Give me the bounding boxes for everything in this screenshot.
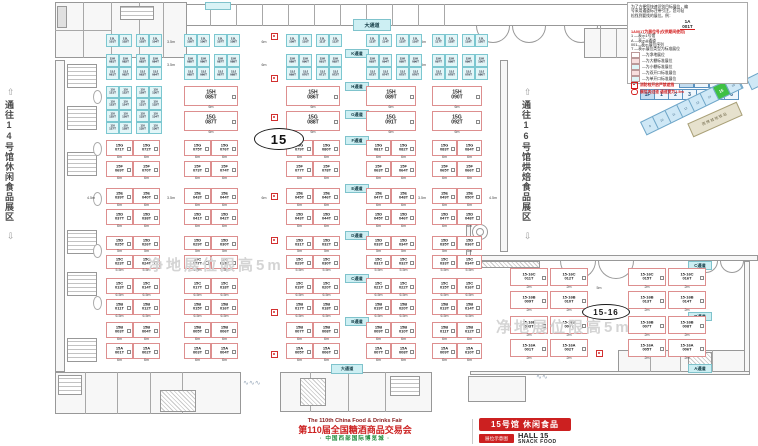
booth-15G-083T[interactable]: 15G 083T xyxy=(432,140,457,156)
booth-15J-065T[interactable]: 15J 065T xyxy=(184,67,197,80)
booth-15K-097T[interactable]: 15K 097T xyxy=(432,54,445,67)
booth-15B-011T[interactable]: 15B 011T xyxy=(106,299,133,315)
booth-15A-003T[interactable]: 15A 003T xyxy=(184,343,211,359)
dimension-label: 3.5m xyxy=(162,197,180,201)
booth-15D-034T[interactable]: 15D 034T xyxy=(391,236,416,250)
booth-15I-134T[interactable]: 15I 134T xyxy=(149,110,162,122)
booth-label: 15-16B 009T xyxy=(511,296,547,304)
booth-15G-084T[interactable]: 15G 084T xyxy=(457,140,482,156)
booth-15G-082T[interactable]: 15G 082T xyxy=(391,140,416,156)
booth-15D-048T[interactable]: 15D 048T xyxy=(457,209,482,225)
booth-15H-089T[interactable]: 15H 089T xyxy=(366,86,416,106)
booth-label: 15D 030T xyxy=(212,239,237,247)
legend-sample-number: 1A001T xyxy=(631,19,744,29)
booth-15-16B-014T[interactable]: 15-16B 014T xyxy=(668,291,706,309)
booth-15H-086T[interactable]: 15H 086T xyxy=(286,86,340,106)
booth-15L-114T[interactable]: 15L 114T xyxy=(379,34,392,47)
booth-label: 15I 132T xyxy=(150,101,161,107)
booth-15K-100T[interactable]: 15K 100T xyxy=(475,54,488,67)
booth-15-16B-013T[interactable]: 15-16B 013T xyxy=(628,291,666,309)
booth-15D-042T[interactable]: 15D 042T xyxy=(211,209,238,225)
booth-label: 15-16B 013T xyxy=(629,296,665,304)
booth-15I-121T[interactable]: 15I 121T xyxy=(106,86,119,98)
booth-15C-030T[interactable]: 15C 030T xyxy=(313,255,340,269)
booth-15L-113T[interactable]: 15L 113T xyxy=(366,34,379,47)
booth-15E-039T[interactable]: 15E 039T xyxy=(106,188,133,204)
booth-label: 15G 072T xyxy=(134,144,159,152)
booth-15C-023T[interactable]: 15C 023T xyxy=(106,255,133,269)
booth-15C-014T[interactable]: 15C 014T xyxy=(133,278,160,294)
booth-15C-018T[interactable]: 15C 018T xyxy=(211,278,238,294)
booth-label: 15K 086T xyxy=(198,57,209,63)
booth-15K-092T[interactable]: 15K 092T xyxy=(329,54,342,67)
booth-label: 15I 135T xyxy=(137,125,148,131)
booth-15L-102T[interactable]: 15L 102T xyxy=(119,34,132,47)
booth-15L-109T[interactable]: 15L 109T xyxy=(286,34,299,47)
booth-15B-019T[interactable]: 15B 019T xyxy=(366,299,391,315)
booth-15C-015T[interactable]: 15C 015T xyxy=(432,278,457,294)
booth-15L-108T[interactable]: 15L 108T xyxy=(227,34,240,47)
booth-15A-006T[interactable]: 15A 006T xyxy=(313,343,340,359)
booth-15J-068T[interactable]: 15J 068T xyxy=(227,67,240,80)
dimension-label: 6m xyxy=(366,156,391,160)
booth-15L-104T[interactable]: 15L 104T xyxy=(149,34,162,47)
booth-15L-116T[interactable]: 15L 116T xyxy=(409,34,422,47)
dimension-label: 6m xyxy=(391,338,416,342)
booth-15-16C-016T[interactable]: 15-16C 016T xyxy=(668,268,706,286)
watermark: 净地展位限高5m xyxy=(148,254,284,275)
booth-label: 15C 030T xyxy=(314,258,339,266)
booth-label: 15G 075T xyxy=(185,144,210,152)
booth-15D-025T[interactable]: 15D 025T xyxy=(106,236,133,250)
staircase xyxy=(390,376,420,396)
booth-label: 15K 084T xyxy=(150,57,161,63)
booth-15J-080T[interactable]: 15J 080T xyxy=(475,67,488,80)
booth-label: 15K 099T xyxy=(463,57,474,63)
booth-15E-050T[interactable]: 15E 050T xyxy=(457,188,482,204)
booth-15L-107T[interactable]: 15L 107T xyxy=(214,34,227,47)
booth-15L-112T[interactable]: 15L 112T xyxy=(329,34,342,47)
booth-15F-074T[interactable]: 15F 074T xyxy=(211,161,238,177)
dimension-label: 6m xyxy=(211,204,238,208)
booth-label: 15K 092T xyxy=(330,57,341,63)
booth-15J-072T[interactable]: 15J 072T xyxy=(329,67,342,80)
booth-15L-106T[interactable]: 15L 106T xyxy=(197,34,210,47)
booth-15A-009T[interactable]: 15A 009T xyxy=(432,343,457,359)
expansion-joint: ∿∿ xyxy=(536,374,548,381)
booth-15G-087T[interactable]: 15G 087T xyxy=(184,111,238,131)
booth-label: 15B 014T xyxy=(458,303,481,311)
wall-hatch xyxy=(300,378,326,406)
booth-15I-130T[interactable]: 15I 130T xyxy=(149,86,162,98)
booth-15J-064T[interactable]: 15J 064T xyxy=(149,67,162,80)
booth-15-16A-002T[interactable]: 15-16A 002T xyxy=(550,339,588,357)
booth-15D-045T[interactable]: 15D 045T xyxy=(366,209,391,225)
booth-label: 15A 001T xyxy=(107,347,132,355)
booth-15A-007T[interactable]: 15A 007T xyxy=(366,343,391,359)
entrance-door-arc xyxy=(512,26,546,43)
booth-15E-045T[interactable]: 15E 045T xyxy=(286,188,313,204)
booth-15I-131T[interactable]: 15I 131T xyxy=(136,98,149,110)
booth-15J-074T[interactable]: 15J 074T xyxy=(379,67,392,80)
booth-label: 15-16A 005T xyxy=(629,344,665,352)
booth-15H-090T[interactable]: 15H 090T xyxy=(432,86,482,106)
booth-15B-009T[interactable]: 15B 009T xyxy=(366,322,391,338)
booth-15E-047T[interactable]: 15E 047T xyxy=(366,188,391,204)
dimension-label: 6m xyxy=(133,156,160,160)
booth-15C-034T[interactable]: 15C 034T xyxy=(457,255,482,269)
booth-15K-082T[interactable]: 15K 082T xyxy=(119,54,132,67)
booth-label: 15A 007T xyxy=(367,347,390,355)
booth-15J-078T[interactable]: 15J 078T xyxy=(445,67,458,80)
booth-label: 15A 004T xyxy=(212,347,237,355)
booth-15A-001T[interactable]: 15A 001T xyxy=(106,343,133,359)
booth-15J-077T[interactable]: 15J 077T xyxy=(432,67,445,80)
booth-15C-033T[interactable]: 15C 033T xyxy=(432,255,457,269)
booth-label: 15C 014T xyxy=(134,282,159,290)
booth-15J-062T[interactable]: 15J 062T xyxy=(119,67,132,80)
booth-15K-083T[interactable]: 15K 083T xyxy=(136,54,149,67)
booth-15D-033T[interactable]: 15D 033T xyxy=(366,236,391,250)
booth-label: 15F 065T xyxy=(433,165,456,173)
dimension-label: 6m xyxy=(457,156,482,160)
dimension-label: 6m xyxy=(133,338,160,342)
booth-15C-016T[interactable]: 15C 016T xyxy=(457,278,482,294)
booth-15B-016T[interactable]: 15B 016T xyxy=(211,299,238,315)
booth-15C-017T[interactable]: 15C 017T xyxy=(184,278,211,294)
booth-15E-046T[interactable]: 15E 046T xyxy=(313,188,340,204)
booth-15-16A-001T[interactable]: 15-16A 001T xyxy=(510,339,548,357)
booth-15C-031T[interactable]: 15C 031T xyxy=(366,255,391,269)
booth-label: 15I 136T xyxy=(150,125,161,131)
booth-15C-032T[interactable]: 15C 032T xyxy=(391,255,416,269)
dimension-label: 3.5m xyxy=(162,41,180,45)
booth-15A-010T[interactable]: 15A 010T xyxy=(457,343,482,359)
booth-15I-135T[interactable]: 15I 135T xyxy=(136,122,149,134)
booth-15B-010T[interactable]: 15B 010T xyxy=(391,322,416,338)
booth-15F-077T[interactable]: 15F 077T xyxy=(286,161,313,177)
booth-15L-118T[interactable]: 15L 118T xyxy=(445,34,458,47)
dimension-label: 5m xyxy=(432,250,457,254)
dimension-label: 6m xyxy=(366,225,391,229)
booth-15L-105T[interactable]: 15L 105T xyxy=(184,34,197,47)
booth-15A-002T[interactable]: 15A 002T xyxy=(133,343,160,359)
staircase xyxy=(67,152,97,176)
booth-15C-021T[interactable]: 15C 021T xyxy=(366,278,391,294)
booth-15D-038T[interactable]: 15D 038T xyxy=(133,209,160,225)
booth-15B-013T[interactable]: 15B 013T xyxy=(432,299,457,315)
dimension-label: 6m xyxy=(313,156,340,160)
booth-15K-089T[interactable]: 15K 089T xyxy=(286,54,299,67)
booth-15B-012T[interactable]: 15B 012T xyxy=(133,299,160,315)
booth-15L-120T[interactable]: 15L 120T xyxy=(475,34,488,47)
booth-label: 15J 066T xyxy=(198,70,209,76)
booth-15I-122T[interactable]: 15I 122T xyxy=(119,86,132,98)
booth-15J-066T[interactable]: 15J 066T xyxy=(197,67,210,80)
booth-15C-019T[interactable]: 15C 019T xyxy=(286,278,313,294)
booth-15D-026T[interactable]: 15D 026T xyxy=(133,236,160,250)
booth-label: 15B 016T xyxy=(212,303,237,311)
booth-label: 15C 013T xyxy=(107,282,132,290)
booth-15F-063T[interactable]: 15F 063T xyxy=(366,161,391,177)
booth-label: 15J 072T xyxy=(330,70,341,76)
booth-15I-132T[interactable]: 15I 132T xyxy=(149,98,162,110)
booth-label: 15K 091T xyxy=(317,57,328,63)
booth-label: 15J 079T xyxy=(463,70,474,76)
booth-15-16A-005T[interactable]: 15-16A 005T xyxy=(628,339,666,357)
booth-15K-081T[interactable]: 15K 081T xyxy=(106,54,119,67)
booth-label: 15A 008T xyxy=(392,347,415,355)
booth-15D-031T[interactable]: 15D 031T xyxy=(286,236,313,250)
booth-15J-070T[interactable]: 15J 070T xyxy=(299,67,312,80)
booth-15C-029T[interactable]: 15C 029T xyxy=(286,255,313,269)
booth-15B-015T[interactable]: 15B 015T xyxy=(184,299,211,315)
booth-15-16B-007T[interactable]: 15-16B 007T xyxy=(628,316,666,334)
booth-15B-008T[interactable]: 15B 008T xyxy=(313,322,340,338)
booth-15-16C-015T[interactable]: 15-16C 015T xyxy=(628,268,666,286)
booth-15I-133T[interactable]: 15I 133T xyxy=(136,110,149,122)
booth-15B-014T[interactable]: 15B 014T xyxy=(457,299,482,315)
dimension-label: 6m xyxy=(106,225,133,229)
booth-15K-085T[interactable]: 15K 085T xyxy=(184,54,197,67)
spiral-stair-inner xyxy=(476,228,484,236)
booth-label: 15L 118T xyxy=(446,37,457,43)
booth-15E-040T[interactable]: 15E 040T xyxy=(133,188,160,204)
booth-15F-064T[interactable]: 15F 064T xyxy=(391,161,416,177)
booth-15D-046T[interactable]: 15D 046T xyxy=(391,209,416,225)
wall-hatch xyxy=(160,390,196,412)
booth-15F-066T[interactable]: 15F 066T xyxy=(457,161,482,177)
booth-15I-128T[interactable]: 15I 128T xyxy=(119,122,132,134)
booth-15F-070T[interactable]: 15F 070T xyxy=(133,161,160,177)
booth-15G-091T[interactable]: 15G 091T xyxy=(366,111,416,131)
booth-15D-032T[interactable]: 15D 032T xyxy=(313,236,340,250)
dimension-label: 5.5m xyxy=(457,269,482,273)
booth-label: 15B 011T xyxy=(107,303,132,311)
dimension-label: 6m xyxy=(133,359,160,363)
booth-15B-004T[interactable]: 15B 004T xyxy=(133,322,160,338)
booth-15D-035T[interactable]: 15D 035T xyxy=(432,236,457,250)
booth-15B-018T[interactable]: 15B 018T xyxy=(313,299,340,315)
wall-partition xyxy=(117,372,118,414)
booth-15J-063T[interactable]: 15J 063T xyxy=(136,67,149,80)
booth-15I-125T[interactable]: 15I 125T xyxy=(106,110,119,122)
booth-15L-117T[interactable]: 15L 117T xyxy=(432,34,445,47)
booth-label: 15H 085T xyxy=(185,90,237,101)
booth-15L-119T[interactable]: 15L 119T xyxy=(462,34,475,47)
booth-15E-044T[interactable]: 15E 044T xyxy=(211,188,238,204)
booth-15E-049T[interactable]: 15E 049T xyxy=(432,188,457,204)
booth-15J-079T[interactable]: 15J 079T xyxy=(462,67,475,80)
booth-15D-030T[interactable]: 15D 030T xyxy=(211,236,238,250)
booth-label: 15D 041T xyxy=(185,213,210,221)
booth-label: 15L 101T xyxy=(107,37,118,43)
booth-15-16A-006T[interactable]: 15-16A 006T xyxy=(668,339,706,357)
dimension-label: 6m xyxy=(106,359,133,363)
booth-15I-126T[interactable]: 15I 126T xyxy=(119,110,132,122)
booth-15K-095T[interactable]: 15K 095T xyxy=(396,54,409,67)
booth-15F-069T[interactable]: 15F 069T xyxy=(106,161,133,177)
booth-label: 15K 082T xyxy=(120,57,131,63)
dimension-label: 6m xyxy=(313,359,340,363)
booth-label: 15B 015T xyxy=(185,303,210,311)
booth-15K-096T[interactable]: 15K 096T xyxy=(409,54,422,67)
dimension-label: 6.5m xyxy=(391,294,416,298)
booth-15F-073T[interactable]: 15F 073T xyxy=(184,161,211,177)
booth-label: 15B 020T xyxy=(392,303,415,311)
booth-15K-098T[interactable]: 15K 098T xyxy=(445,54,458,67)
dimension-label: 6.5m xyxy=(184,315,211,319)
wall-partition xyxy=(444,4,445,26)
booth-15D-037T[interactable]: 15D 037T xyxy=(106,209,133,225)
dimension-label: 6m xyxy=(313,204,340,208)
booth-15L-101T[interactable]: 15L 101T xyxy=(106,34,119,47)
booth-15A-005T[interactable]: 15A 005T xyxy=(286,343,313,359)
dimension-label: 5.5m xyxy=(286,269,313,273)
booth-label: 15J 068T xyxy=(228,70,239,76)
booth-15K-091T[interactable]: 15K 091T xyxy=(316,54,329,67)
booth-15G-088T[interactable]: 15G 088T xyxy=(286,111,340,131)
booth-label: 15D 046T xyxy=(392,213,415,221)
booth-label: 15G 071T xyxy=(107,144,132,152)
dimension-label: 6m xyxy=(313,177,340,181)
booth-15G-081T[interactable]: 15G 081T xyxy=(366,140,391,156)
booth-15A-004T[interactable]: 15A 004T xyxy=(211,343,238,359)
booth-15L-103T[interactable]: 15L 103T xyxy=(136,34,149,47)
booth-label: 15D 048T xyxy=(458,213,481,221)
booth-label: 15G 081T xyxy=(367,144,390,152)
booth-15E-043T[interactable]: 15E 043T xyxy=(184,188,211,204)
booth-15J-069T[interactable]: 15J 069T xyxy=(286,67,299,80)
dimension-label: 6m xyxy=(286,359,313,363)
booth-label: 15F 069T xyxy=(107,165,132,173)
booth-label: 15H 089T xyxy=(367,90,415,101)
booth-15C-013T[interactable]: 15C 013T xyxy=(106,278,133,294)
booth-15G-092T[interactable]: 15G 092T xyxy=(432,111,482,131)
booth-label: 15L 111T xyxy=(317,37,328,43)
booth-15K-087T[interactable]: 15K 087T xyxy=(214,54,227,67)
booth-15I-129T[interactable]: 15I 129T xyxy=(136,86,149,98)
booth-15G-080T[interactable]: 15G 080T xyxy=(313,140,340,156)
booth-15G-072T[interactable]: 15G 072T xyxy=(133,140,160,156)
booth-15B-006T[interactable]: 15B 006T xyxy=(211,322,238,338)
booth-15F-078T[interactable]: 15F 078T xyxy=(313,161,340,177)
dimension-label: 5m xyxy=(590,287,608,291)
booth-label: 15D 047T xyxy=(433,213,456,221)
booth-15H-085T[interactable]: 15H 085T xyxy=(184,86,238,106)
wall-hatch xyxy=(474,261,540,268)
booth-15L-115T[interactable]: 15L 115T xyxy=(396,34,409,47)
booth-15L-111T[interactable]: 15L 111T xyxy=(316,34,329,47)
booth-15D-047T[interactable]: 15D 047T xyxy=(432,209,457,225)
booth-15B-012T[interactable]: 15B 012T xyxy=(457,322,482,338)
booth-15D-044T[interactable]: 15D 044T xyxy=(313,209,340,225)
dimension-label: 5m xyxy=(457,250,482,254)
booth-15J-067T[interactable]: 15J 067T xyxy=(214,67,227,80)
booth-15B-017T[interactable]: 15B 017T xyxy=(286,299,313,315)
booth-15J-073T[interactable]: 15J 073T xyxy=(366,67,379,80)
booth-15K-094T[interactable]: 15K 094T xyxy=(379,54,392,67)
booth-label: 15K 088T xyxy=(228,57,239,63)
booth-label: 15I 131T xyxy=(137,101,148,107)
south-rooms-d xyxy=(468,376,526,402)
wall-partition xyxy=(385,372,386,412)
fire-hydrant-icon xyxy=(271,193,278,200)
dimension-label: 6.5m xyxy=(184,294,211,298)
plan-badge: 展位示意图 xyxy=(479,434,514,443)
booth-label: 15L 110T xyxy=(300,37,311,43)
booth-15B-007T[interactable]: 15B 007T xyxy=(286,322,313,338)
booth-15G-075T[interactable]: 15G 075T xyxy=(184,140,211,156)
dimension-label: 6m xyxy=(184,204,211,208)
booth-15B-020T[interactable]: 15B 020T xyxy=(391,299,416,315)
booth-15J-075T[interactable]: 15J 075T xyxy=(396,67,409,80)
booth-15F-065T[interactable]: 15F 065T xyxy=(432,161,457,177)
booth-label: 15C 018T xyxy=(212,282,237,290)
door-leaf xyxy=(93,90,102,104)
booth-15B-005T[interactable]: 15B 005T xyxy=(184,322,211,338)
booth-15B-003T[interactable]: 15B 003T xyxy=(106,322,133,338)
booth-15G-071T[interactable]: 15G 071T xyxy=(106,140,133,156)
booth-15C-020T[interactable]: 15C 020T xyxy=(313,278,340,294)
hall-title: 15号馆 休闲食品 xyxy=(479,418,571,431)
booth-15-16B-010T[interactable]: 15-16B 010T xyxy=(550,291,588,309)
booth-15-16C-012T[interactable]: 15-16C 012T xyxy=(550,268,588,286)
booth-15K-086T[interactable]: 15K 086T xyxy=(197,54,210,67)
booth-15-16B-008T[interactable]: 15-16B 008T xyxy=(668,316,706,334)
booth-15D-043T[interactable]: 15D 043T xyxy=(286,209,313,225)
dimension-label: 6m xyxy=(133,204,160,208)
booth-15L-110T[interactable]: 15L 110T xyxy=(299,34,312,47)
booth-15J-071T[interactable]: 15J 071T xyxy=(316,67,329,80)
booth-15J-076T[interactable]: 15J 076T xyxy=(409,67,422,80)
booth-15-16C-011T[interactable]: 15-16C 011T xyxy=(510,268,548,286)
booth-15A-008T[interactable]: 15A 008T xyxy=(391,343,416,359)
booth-15G-076T[interactable]: 15G 076T xyxy=(211,140,238,156)
booth-15I-127T[interactable]: 15I 127T xyxy=(106,122,119,134)
booth-15E-048T[interactable]: 15E 048T xyxy=(391,188,416,204)
booth-label: 15L 109T xyxy=(287,37,298,43)
booth-label: 15K 087T xyxy=(215,57,226,63)
booth-label: 15F 070T xyxy=(134,165,159,173)
booth-label: 15D 044T xyxy=(314,213,339,221)
booth-label: 15I 133T xyxy=(137,113,148,119)
booth-15I-124T[interactable]: 15I 124T xyxy=(119,98,132,110)
booth-15K-090T[interactable]: 15K 090T xyxy=(299,54,312,67)
booth-label: 15J 074T xyxy=(380,70,391,76)
booth-15C-022T[interactable]: 15C 022T xyxy=(391,278,416,294)
booth-15-16B-009T[interactable]: 15-16B 009T xyxy=(510,291,548,309)
booth-15D-036T[interactable]: 15D 036T xyxy=(457,236,482,250)
wall-partition xyxy=(340,4,341,26)
booth-15B-011T[interactable]: 15B 011T xyxy=(432,322,457,338)
booth-15K-084T[interactable]: 15K 084T xyxy=(149,54,162,67)
booth-15I-123T[interactable]: 15I 123T xyxy=(106,98,119,110)
booth-15K-099T[interactable]: 15K 099T xyxy=(462,54,475,67)
booth-15J-061T[interactable]: 15J 061T xyxy=(106,67,119,80)
dimension-label: 5m xyxy=(391,250,416,254)
booth-15I-136T[interactable]: 15I 136T xyxy=(149,122,162,134)
wall-partition xyxy=(262,4,263,26)
booth-15D-029T[interactable]: 15D 029T xyxy=(184,236,211,250)
booth-label: 15K 083T xyxy=(137,57,148,63)
booth-15D-041T[interactable]: 15D 041T xyxy=(184,209,211,225)
dimension-label: 4.5m xyxy=(484,197,502,201)
wall-partition xyxy=(712,350,713,372)
booth-15K-088T[interactable]: 15K 088T xyxy=(227,54,240,67)
booth-15K-093T[interactable]: 15K 093T xyxy=(366,54,379,67)
booth-label: 15C 016T xyxy=(458,282,481,290)
